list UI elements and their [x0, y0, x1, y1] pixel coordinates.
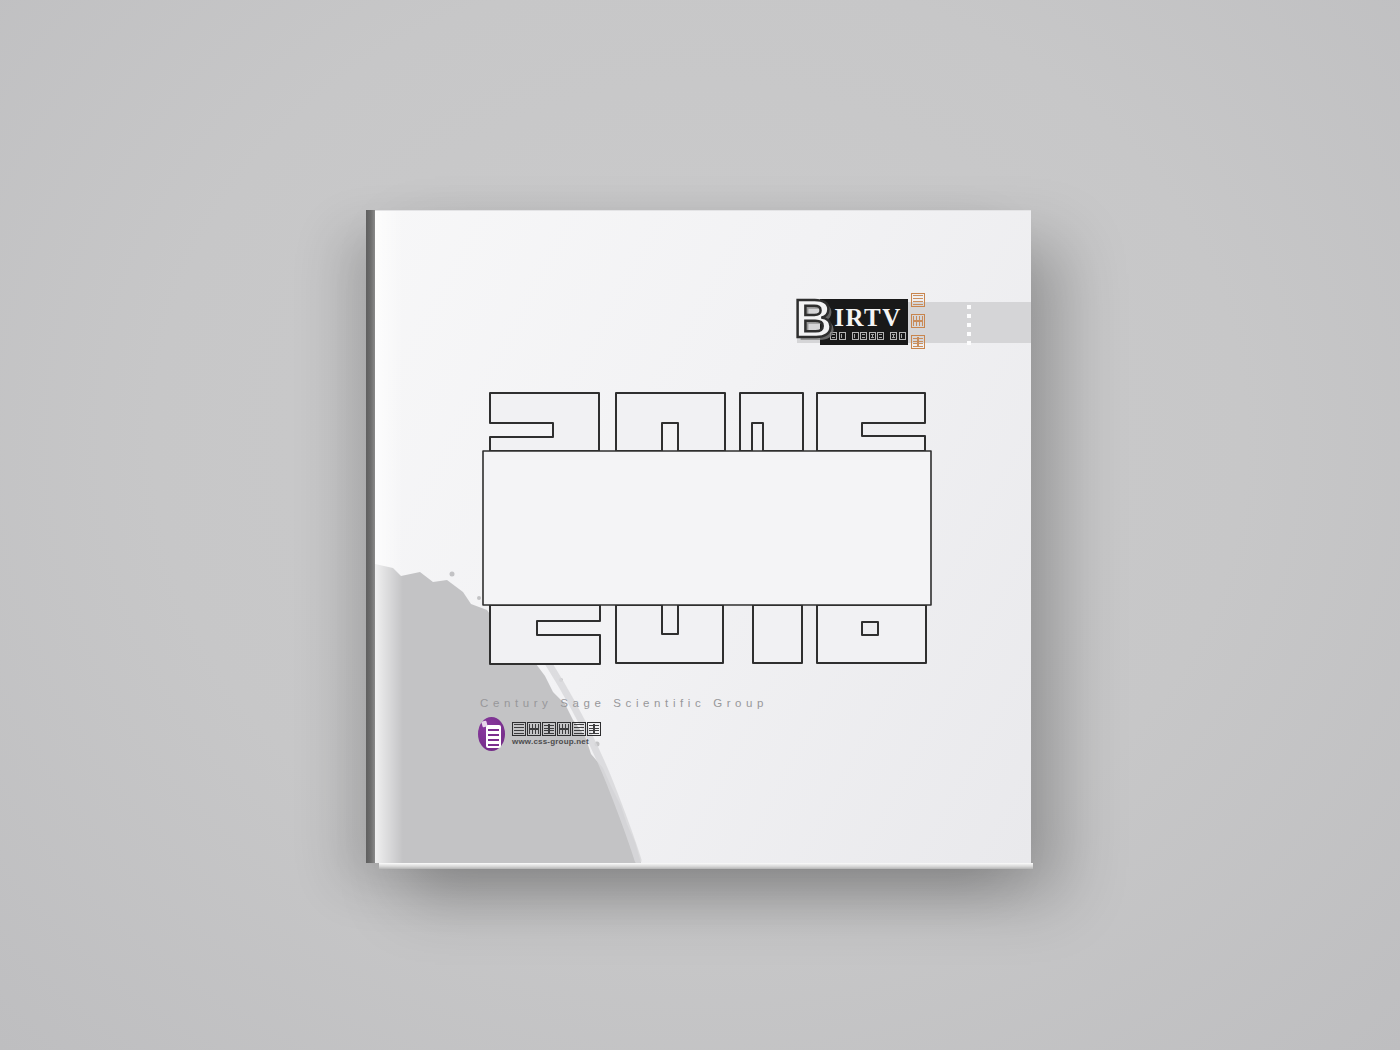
birtv-irtv-text: IRTV	[834, 305, 902, 330]
digit-2-top	[490, 393, 599, 451]
dot	[967, 332, 971, 336]
company-name-cn	[512, 722, 601, 736]
brush-shape	[375, 558, 715, 863]
brochure-book: B IRTV	[375, 210, 1031, 863]
company-website: www.css-group.net	[512, 738, 601, 746]
company-seal-icon	[478, 717, 505, 751]
birtv-black-box: IRTV	[820, 299, 908, 345]
digit-1-top	[740, 393, 803, 451]
company-logo-row: www.css-group.net	[478, 717, 601, 751]
digit-6-bottom	[817, 605, 926, 663]
mockup-scene: { "scene": { "background": "#c7c7c8" }, …	[0, 0, 1400, 1050]
dot	[967, 314, 971, 318]
birtv-logo: B IRTV	[794, 293, 925, 349]
dot	[967, 323, 971, 327]
company-logo-text: www.css-group.net	[512, 722, 601, 746]
book-spine	[366, 210, 375, 863]
dot	[967, 305, 971, 309]
dot-column	[967, 305, 971, 345]
dot	[967, 341, 971, 345]
birtv-tagline-cn	[830, 332, 906, 340]
birtv-b-letter: B	[794, 289, 833, 347]
digit-0-top	[616, 393, 725, 451]
page-stack-edge	[379, 863, 1033, 869]
company-name-en: Century Sage Scientific Group	[480, 697, 768, 709]
memorial-album-cn	[911, 293, 925, 349]
brochure-cover: B IRTV	[375, 210, 1031, 863]
digit-6-top	[817, 393, 925, 451]
digit-1-bottom	[753, 605, 802, 663]
